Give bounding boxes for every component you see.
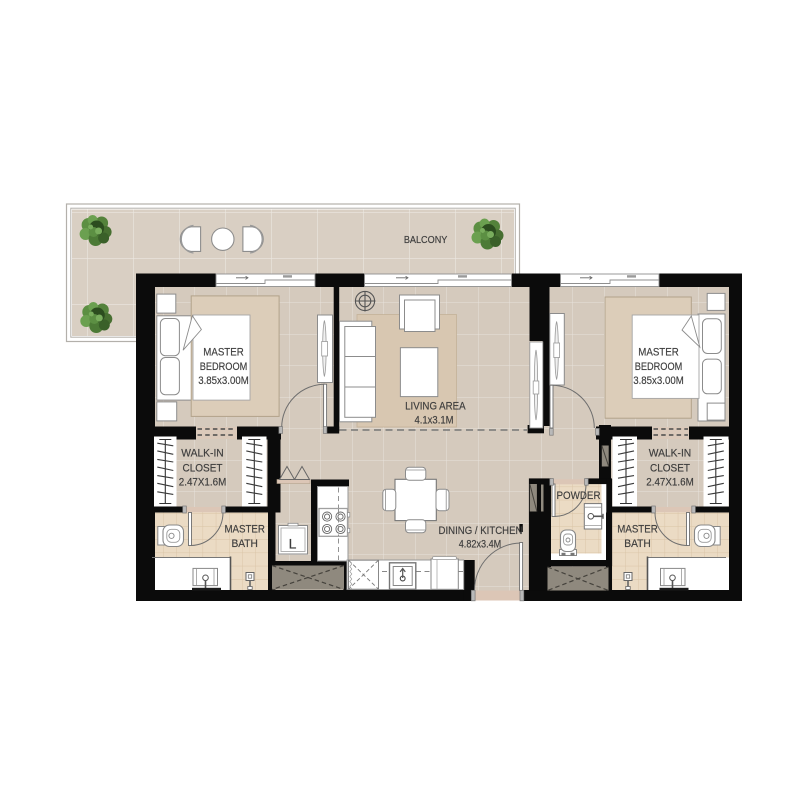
svg-text:POWDER: POWDER xyxy=(557,490,601,502)
svg-text:4.82x3.4M: 4.82x3.4M xyxy=(459,539,502,551)
svg-text:LIVING AREA: LIVING AREA xyxy=(405,400,466,412)
svg-text:BATH: BATH xyxy=(231,538,258,550)
svg-text:2.47X1.6M: 2.47X1.6M xyxy=(179,477,227,489)
svg-text:MASTER: MASTER xyxy=(203,346,244,358)
svg-text:MASTER: MASTER xyxy=(224,523,265,535)
svg-text:CLOSET: CLOSET xyxy=(650,462,690,474)
svg-text:WALK-IN: WALK-IN xyxy=(181,447,224,459)
svg-text:MASTER: MASTER xyxy=(638,346,679,358)
svg-text:2.47X1.6M: 2.47X1.6M xyxy=(646,477,694,489)
svg-text:MASTER: MASTER xyxy=(617,523,658,535)
svg-text:4.1x3.1M: 4.1x3.1M xyxy=(415,414,454,426)
svg-text:L: L xyxy=(289,536,297,552)
svg-text:BEDROOM: BEDROOM xyxy=(635,361,683,373)
svg-text:3.85x3.00M: 3.85x3.00M xyxy=(633,375,684,387)
svg-text:WALK-IN: WALK-IN xyxy=(649,447,692,459)
svg-text:CLOSET: CLOSET xyxy=(183,462,223,474)
svg-text:DINING / KITCHEN: DINING / KITCHEN xyxy=(439,525,523,537)
svg-text:3.85x3.00M: 3.85x3.00M xyxy=(198,375,249,387)
svg-text:BATH: BATH xyxy=(624,538,651,550)
svg-text:BALCONY: BALCONY xyxy=(404,234,448,246)
svg-text:BEDROOM: BEDROOM xyxy=(200,361,248,373)
